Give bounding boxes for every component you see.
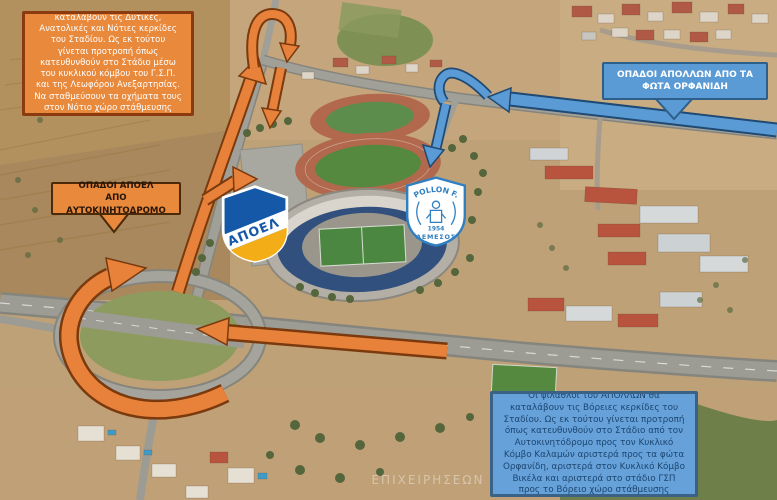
apoel-from-highway-line1: ΟΠΑΔΟΙ ΑΠΟΕΛ	[79, 180, 154, 193]
apollon-instructions-text: Οι φίλαθλοι του ΑΠΟΛΛΩΝ θα καταλάβουν τι…	[501, 391, 687, 497]
callout-apoel-instructions: Οι φίλαθλοι του ΑΠΟΕΛ θα καταλάβουν τις …	[22, 11, 194, 116]
apollon-crest-city: ΛΕΜΕΣΟΣ	[416, 233, 456, 241]
apollon-from-lights-line1: ΟΠΑΔΟΙ ΑΠΟΛΛΩΝ ΑΠΟ ΤΑ	[617, 69, 753, 82]
apollon-from-lights-box: ΟΠΑΔΟΙ ΑΠΟΛΛΩΝ ΑΠΟ ΤΑ ΦΩΤΑ ΟΡΦΑΝΙΔΗ	[602, 62, 768, 100]
callout-apoel-from-highway: ΟΠΑΔΟΙ ΑΠΟΕΛ ΑΠΟ ΑΥΤΟΚΙΝΗΤΟΔΡΟΜΟ	[51, 182, 181, 215]
callout-apollon-from-lights: ΟΠΑΔΟΙ ΑΠΟΛΛΩΝ ΑΠΟ ΤΑ ΦΩΤΑ ΟΡΦΑΝΙΔΗ	[602, 62, 768, 100]
apollon-from-lights-line2: ΦΩΤΑ ΟΡΦΑΝΙΔΗ	[642, 81, 728, 94]
apoel-logo: ΑΠΟΕΛ	[218, 184, 292, 264]
apoel-instructions-box: Οι φίλαθλοι του ΑΠΟΕΛ θα καταλάβουν τις …	[22, 11, 194, 116]
apollon-instructions-box: Οι φίλαθλοι του ΑΠΟΛΛΩΝ θα καταλάβουν τι…	[490, 391, 698, 497]
apoel-instructions-text: Οι φίλαθλοι του ΑΠΟΕΛ θα καταλάβουν τις …	[34, 11, 182, 116]
apoel-from-highway-line2: ΑΠΟ ΑΥΤΟΚΙΝΗΤΟΔΡΟΜΟ	[57, 192, 175, 217]
route-map: Οι φίλαθλοι του ΑΠΟΕΛ θα καταλάβουν τις …	[0, 0, 777, 500]
apoel-crest: ΑΠΟΕΛ	[218, 184, 292, 264]
callout-apollon-instructions: Οι φίλαθλοι του ΑΠΟΛΛΩΝ θα καταλάβουν τι…	[490, 391, 698, 497]
apollon-crest-year: 1954	[428, 225, 445, 232]
apollon-crest: APOLLON F.C 1954 ΛΕΜΕΣΟΣ	[404, 174, 468, 250]
apoel-from-highway-box: ΟΠΑΔΟΙ ΑΠΟΕΛ ΑΠΟ ΑΥΤΟΚΙΝΗΤΟΔΡΟΜΟ	[51, 182, 181, 215]
callout-tail-down	[652, 97, 696, 123]
apollon-logo: APOLLON F.C 1954 ΛΕΜΕΣΟΣ	[404, 174, 468, 250]
